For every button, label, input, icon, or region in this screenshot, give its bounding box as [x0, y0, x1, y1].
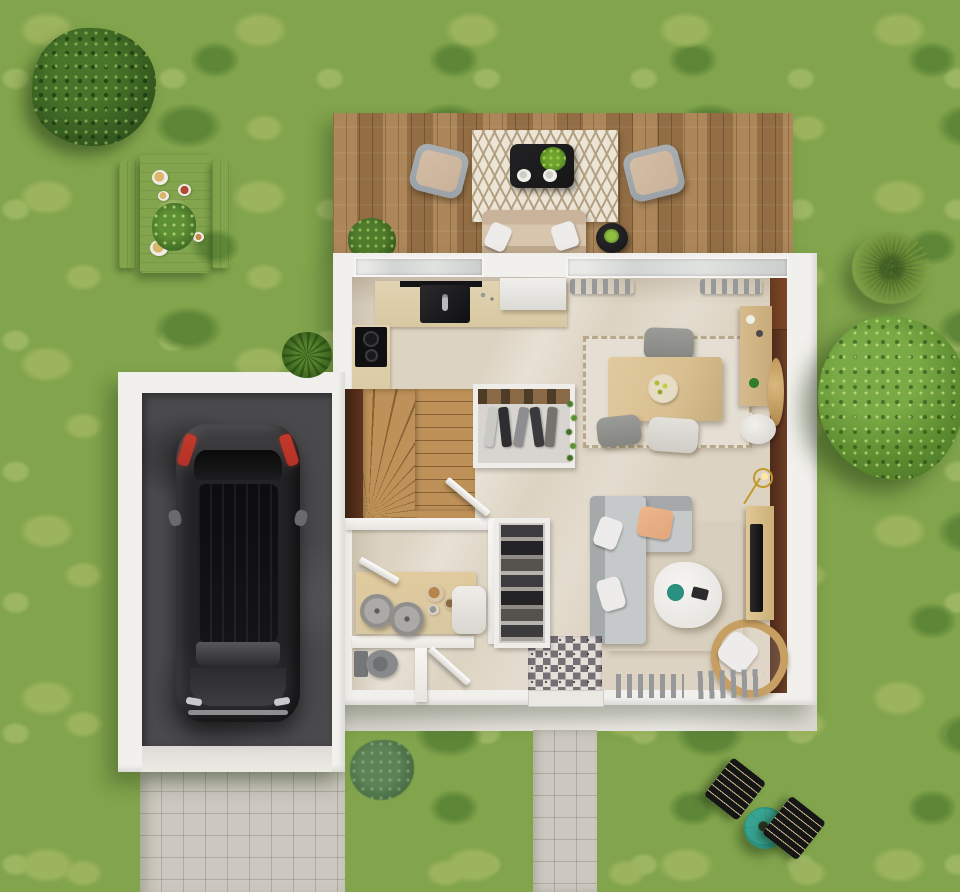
- interior-wall: [415, 648, 427, 702]
- floor-lamp: [745, 468, 775, 506]
- outdoor-sofa: [482, 210, 586, 258]
- coffee-table-plant: [540, 147, 566, 171]
- car-roof-glass: [198, 484, 278, 642]
- burner: [363, 331, 379, 347]
- ornamental-grass: [852, 232, 930, 304]
- coffee-table-plant-teal: [667, 584, 684, 601]
- hall-wardrobe: [473, 384, 575, 468]
- patio-sliding-door: [566, 257, 789, 278]
- laundry-basket: [360, 594, 394, 628]
- toilet: [354, 648, 400, 680]
- driveway: [140, 770, 345, 892]
- linen-closet: [494, 518, 550, 648]
- bush-top-left: [32, 28, 156, 146]
- coffee-table-tray: [691, 586, 709, 601]
- picnic-bench-right: [212, 161, 230, 268]
- sink-faucet: [442, 297, 448, 311]
- deck-side-table: [596, 223, 628, 253]
- radiator: [616, 674, 684, 698]
- radiator: [698, 669, 765, 699]
- teal-bush: [350, 740, 414, 800]
- interior-wall: [352, 636, 474, 648]
- garage-shell: [118, 372, 345, 772]
- wall-mirror: [768, 358, 784, 426]
- sofa-pillow: [483, 221, 514, 254]
- utility-stool: [452, 586, 486, 634]
- counter-plate: [428, 605, 439, 615]
- sofa-pillow-peach: [636, 505, 675, 540]
- armchair-cushion: [414, 148, 463, 193]
- coffee-table-plate: [517, 169, 531, 182]
- counter-items: [478, 290, 498, 304]
- shrub: [488, 775, 518, 799]
- cooktop: [355, 327, 387, 367]
- shrub: [601, 777, 631, 801]
- armchair-cushion: [628, 149, 680, 197]
- picnic-bench-left: [119, 161, 137, 268]
- trailing-plant: [563, 398, 581, 464]
- house-shell: [333, 253, 817, 705]
- counter-plate: [426, 585, 444, 602]
- hanging-garment: [513, 406, 530, 447]
- small-bush: [282, 332, 332, 378]
- car-hood: [190, 668, 286, 706]
- car-rear-window: [194, 450, 282, 480]
- concrete-apron: [333, 703, 817, 731]
- laundry-basket: [390, 602, 424, 636]
- lamp-stem: [743, 478, 761, 505]
- hanging-garment: [483, 406, 498, 447]
- sofa-pillow: [550, 220, 581, 252]
- shrub: [604, 733, 634, 757]
- hanging-garment: [498, 407, 512, 448]
- fridge: [500, 278, 566, 310]
- picnic-plate: [158, 191, 169, 201]
- sideboard-decor: [756, 330, 763, 337]
- dining-chair: [647, 416, 699, 453]
- dining-chair: [643, 327, 694, 361]
- front-bumper: [188, 710, 288, 715]
- folded-clothes: [501, 525, 543, 641]
- car-windshield: [196, 642, 280, 668]
- tv: [750, 524, 763, 612]
- right-wall-door: [770, 272, 787, 330]
- living-coffee-table: [654, 562, 722, 628]
- kitchen-window: [354, 257, 484, 277]
- sideboard-vase: [746, 315, 755, 324]
- outdoor-armchair-left: [407, 141, 471, 201]
- curtain-right: [700, 279, 762, 294]
- front-door-threshold: [528, 690, 604, 707]
- picnic-bowl: [178, 184, 191, 196]
- garden-scene: [0, 0, 960, 892]
- picnic-plate: [152, 170, 168, 185]
- deck-coffee-table: [510, 144, 574, 188]
- front-path: [533, 730, 597, 892]
- burner: [365, 349, 378, 362]
- staircase-side-wall: [345, 389, 363, 521]
- garage-door-sill: [142, 746, 332, 772]
- shrub: [598, 817, 628, 841]
- sideboard-plant: [749, 378, 759, 388]
- pouf: [740, 414, 776, 444]
- toilet-bowl: [366, 650, 398, 678]
- side-table-plant: [604, 229, 619, 243]
- wardrobe-rail: [478, 389, 570, 404]
- dining-table: [608, 357, 722, 421]
- dining-chair: [596, 414, 643, 448]
- large-tree: [818, 316, 960, 480]
- curtain-left: [570, 279, 634, 294]
- outdoor-armchair-right: [621, 142, 687, 204]
- sun-lounger: [762, 796, 826, 861]
- shrub: [492, 733, 522, 757]
- terrace-deck: [333, 113, 793, 258]
- coffee-table-plate: [543, 169, 557, 182]
- fruit-bowl: [648, 374, 678, 403]
- interior-wall: [345, 518, 495, 530]
- car: [176, 424, 300, 722]
- shrub: [485, 812, 515, 836]
- hanging-garment: [544, 407, 557, 448]
- hanging-garment: [529, 406, 544, 447]
